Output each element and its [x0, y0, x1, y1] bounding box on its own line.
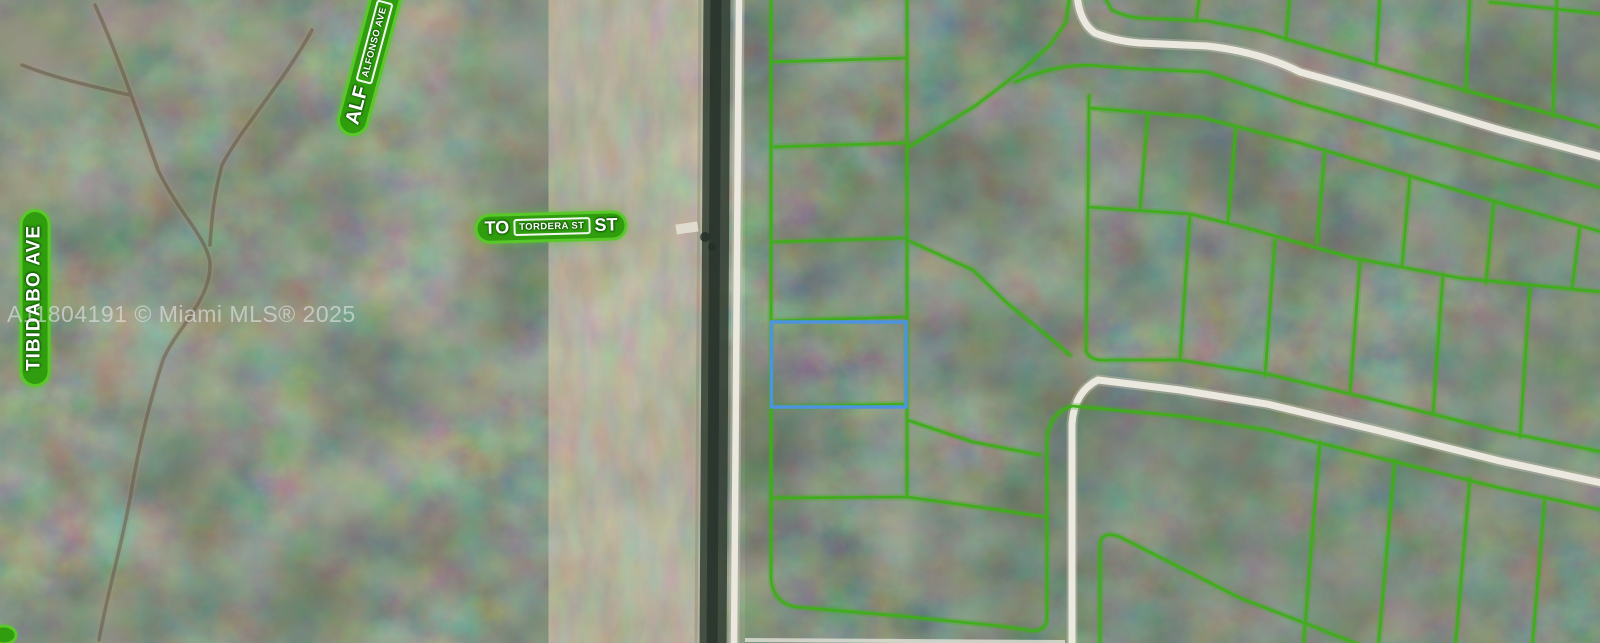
- street-label-tibidabo-ave: TIBIDABO AVE: [23, 212, 48, 384]
- street-label-fullname-box: TORDERA ST: [513, 217, 591, 236]
- canal-corridor: [556, 0, 717, 643]
- mls-watermark: A11804191 © Miami MLS® 2025: [7, 301, 356, 328]
- mls-aerial-parcel-map: TIBIDABO AVE ALF ALFONSO AVE TO TORDERA …: [0, 0, 1600, 643]
- street-label-text: TIBIDABO AVE: [25, 225, 46, 371]
- street-label-prefix: TO: [484, 218, 509, 238]
- street-label-suffix: ST: [594, 215, 618, 235]
- map-blob: [0, 626, 16, 643]
- street-label-tordera-st: TO TORDERA ST ST: [477, 213, 624, 241]
